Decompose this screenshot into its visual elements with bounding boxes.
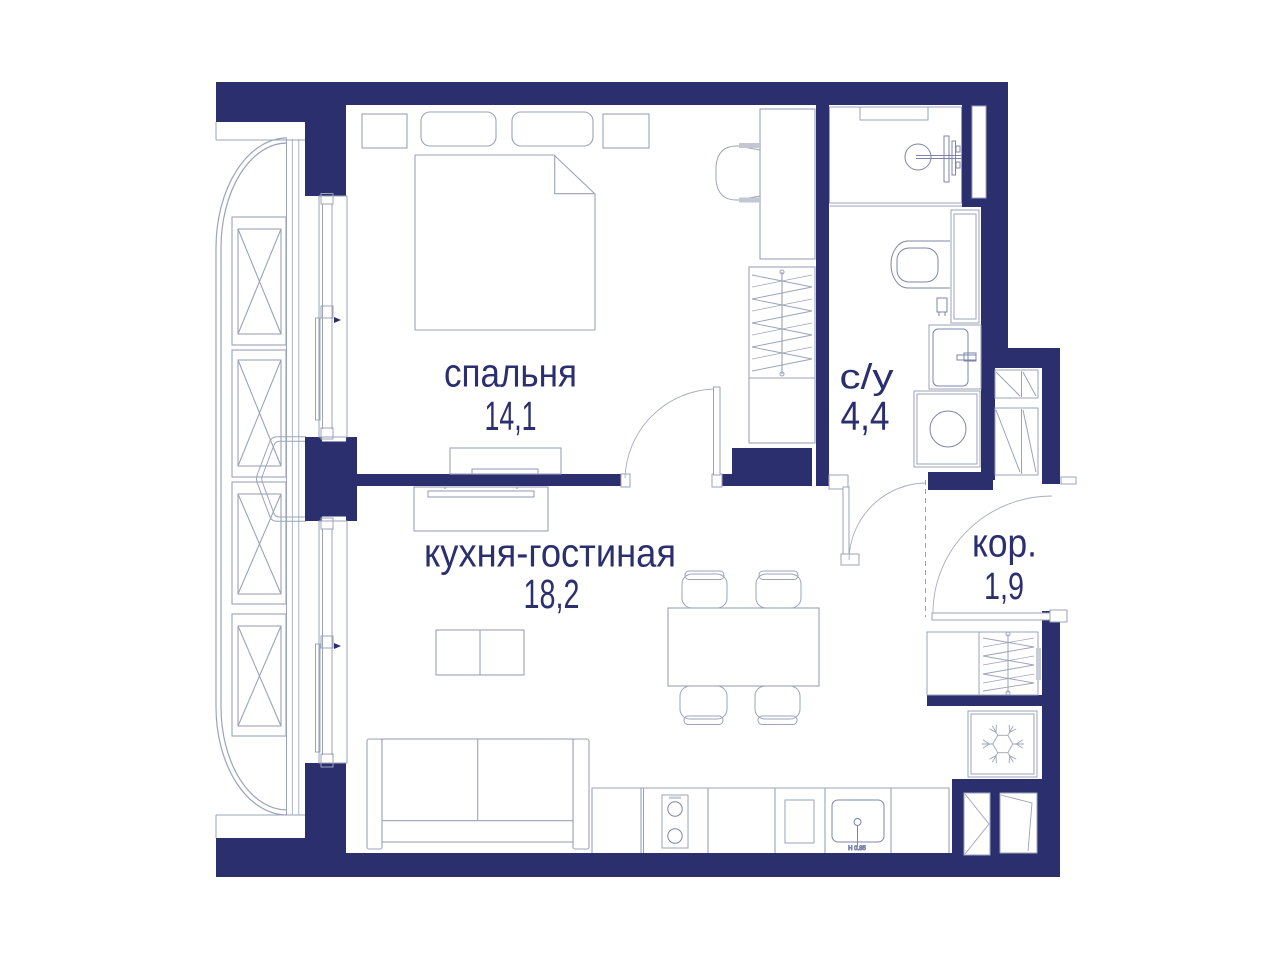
svg-text:кор.: кор.	[972, 522, 1037, 566]
svg-text:14,1: 14,1	[485, 393, 537, 439]
svg-text:1,9: 1,9	[984, 566, 1024, 608]
svg-text:спальня: спальня	[444, 352, 577, 396]
svg-text:18,2: 18,2	[524, 571, 580, 617]
svg-text:с/у: с/у	[840, 358, 895, 397]
svg-text:H 0.85: H 0.85	[848, 846, 866, 852]
svg-text:кухня-гостиная: кухня-гостиная	[424, 532, 676, 576]
svg-text:4,4: 4,4	[841, 393, 890, 439]
